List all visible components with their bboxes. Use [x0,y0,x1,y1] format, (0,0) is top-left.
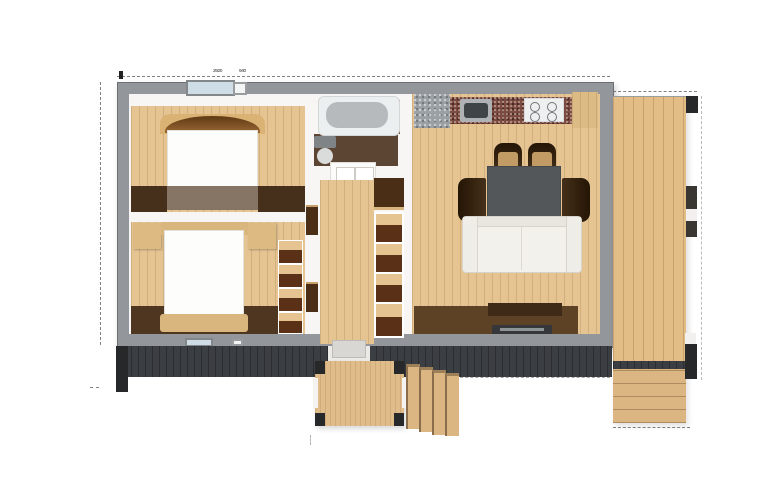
dimension-line-deck-right [701,96,702,380]
bedroom2-nightstand-left [133,223,161,249]
wardrobe-shelf [279,241,302,263]
closet-shelf [376,214,402,242]
floor-plan-canvas: 2920 940 [0,0,781,502]
burner [547,112,557,122]
cooktop [524,98,564,122]
window-small-top [233,82,247,95]
deck-steps [613,369,686,423]
deck [613,96,686,361]
hallway-closet [374,212,404,338]
hallway-niche [306,205,318,235]
wardrobe-shelf [279,265,302,287]
bedroom1-dresser-right [258,186,305,212]
porch-post [394,361,404,374]
sofa-armrest [463,217,478,272]
dimension-line-bottom [450,377,610,378]
bedroom2-bed [164,230,244,316]
tv [492,325,552,334]
kitchen-counter-end [572,92,598,128]
deck-edge-rail [613,361,686,369]
sofa-armrest [566,217,581,272]
kitchen-appliance-top [414,94,450,128]
facade-corner-post [116,346,128,392]
bedroom2-nightstand-right [248,223,276,249]
hallway-niche [306,282,318,312]
hallway-floor [320,180,374,344]
hallway-cupboard [374,178,404,210]
bedroom1-dresser-left [131,186,167,212]
kitchen-sink-basin [464,103,488,118]
closet-shelf [376,274,402,302]
burner [530,102,540,112]
dimension-line-deck-steps [613,427,690,428]
deck-rail-gap [686,209,697,221]
bedroom1-bed [167,130,258,188]
dimension-label-1: 2920 [213,69,222,74]
porch-step [419,367,433,432]
bedroom1-bed-foot-bench [167,186,258,210]
sofa [462,216,582,273]
wardrobe-shelf [279,289,302,311]
deck-rail-gap [685,333,696,344]
entry-door [332,340,366,358]
deck-post-top [686,96,698,113]
closet-shelf [376,244,402,272]
chair-cushion [467,182,483,218]
deck-post-bottom [685,344,697,379]
closet-shelf [376,304,402,336]
burner [547,102,557,112]
window-small-bottom [232,339,243,346]
chair-cushion [565,182,581,218]
dimension-label-2: 940 [239,69,246,74]
wardrobe-shelf [279,313,302,333]
tv-console [488,303,562,316]
dimension-tick-bottom-left [90,387,99,388]
bedroom2-foot-bench [160,314,248,332]
deck-rail-segment [686,186,697,209]
porch-post [394,413,404,426]
dimension-line-deck-top [613,91,697,92]
sofa-back [463,217,581,227]
tv-screen [500,328,544,331]
porch-step [445,373,459,436]
porch-post [315,413,325,426]
deck-rail-segment [686,221,697,237]
entry-porch [315,361,404,426]
bathtub-basin [326,102,388,128]
sofa-cushion-divider [521,227,522,270]
dimension-line-left [100,82,101,345]
bedroom2-wardrobe [278,240,303,334]
porch-step [406,364,420,429]
burner [530,112,540,122]
dimension-line-top [117,76,610,77]
dimension-tick-top-left [119,71,123,79]
porch-rail-gap [313,378,318,408]
window-bedroom1 [186,80,235,96]
dimension-tick-porch [310,435,311,445]
porch-step [432,370,446,435]
porch-post [315,361,325,374]
toilet-tank [314,136,336,148]
